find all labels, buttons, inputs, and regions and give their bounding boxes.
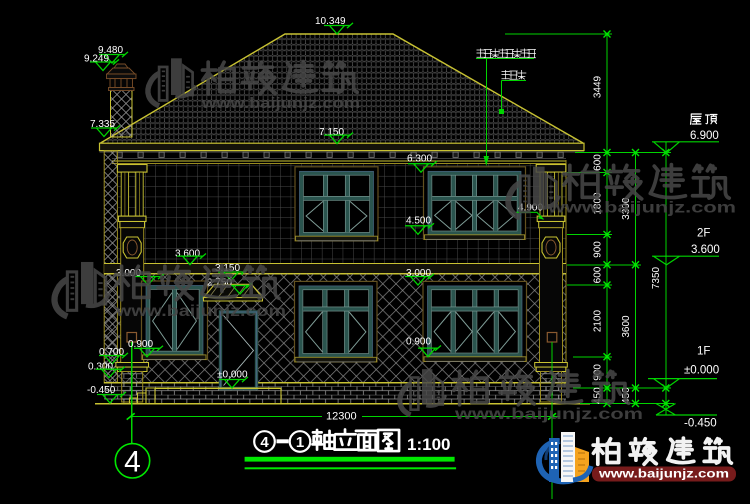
svg-text:600: 600 — [593, 154, 604, 171]
svg-text:2100: 2100 — [593, 309, 604, 332]
svg-text:1: 1 — [296, 434, 304, 451]
svg-text:600: 600 — [593, 266, 604, 283]
svg-text:12300: 12300 — [326, 411, 357, 423]
svg-text:4: 4 — [124, 446, 141, 479]
svg-text:www.baijunjz.com: www.baijunjz.com — [115, 303, 286, 320]
svg-text:4.500: 4.500 — [406, 216, 431, 227]
svg-text:1F: 1F — [697, 346, 710, 358]
svg-text:www.baijunjz.com: www.baijunjz.com — [547, 200, 736, 217]
svg-text:6.900: 6.900 — [690, 130, 719, 142]
svg-text:0.700: 0.700 — [99, 347, 124, 358]
svg-text:0.300: 0.300 — [88, 362, 113, 373]
svg-text:1:100: 1:100 — [407, 435, 450, 454]
svg-text:3449: 3449 — [593, 75, 604, 98]
svg-text:7350: 7350 — [651, 266, 662, 289]
svg-text:www.baijunjz.com: www.baijunjz.com — [454, 406, 643, 423]
svg-text:www.baijunjz.com: www.baijunjz.com — [201, 95, 360, 112]
svg-text:±0.000: ±0.000 — [684, 365, 719, 377]
svg-text:2F: 2F — [697, 228, 710, 240]
svg-text:900: 900 — [593, 241, 604, 258]
svg-text:0.900: 0.900 — [406, 337, 431, 348]
svg-text:6.300: 6.300 — [407, 154, 432, 165]
svg-text:www.baijunjz.com: www.baijunjz.com — [598, 467, 729, 481]
svg-text:3600: 3600 — [621, 315, 632, 338]
svg-text:-0.450: -0.450 — [684, 418, 717, 430]
svg-text:7.150: 7.150 — [319, 127, 344, 138]
svg-text:4: 4 — [260, 434, 269, 451]
svg-text:3.000: 3.000 — [406, 268, 431, 279]
svg-text:3.600: 3.600 — [691, 244, 720, 256]
